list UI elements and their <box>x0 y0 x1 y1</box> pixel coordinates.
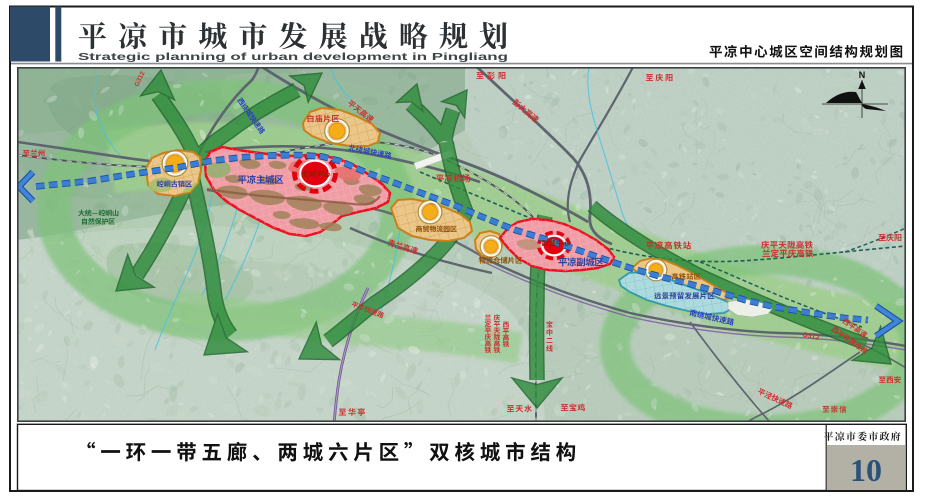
svg-text:Strategic planning of urban de: Strategic planning of urban development … <box>78 51 508 63</box>
svg-text:10: 10 <box>850 452 882 488</box>
svg-text:N: N <box>859 70 866 80</box>
